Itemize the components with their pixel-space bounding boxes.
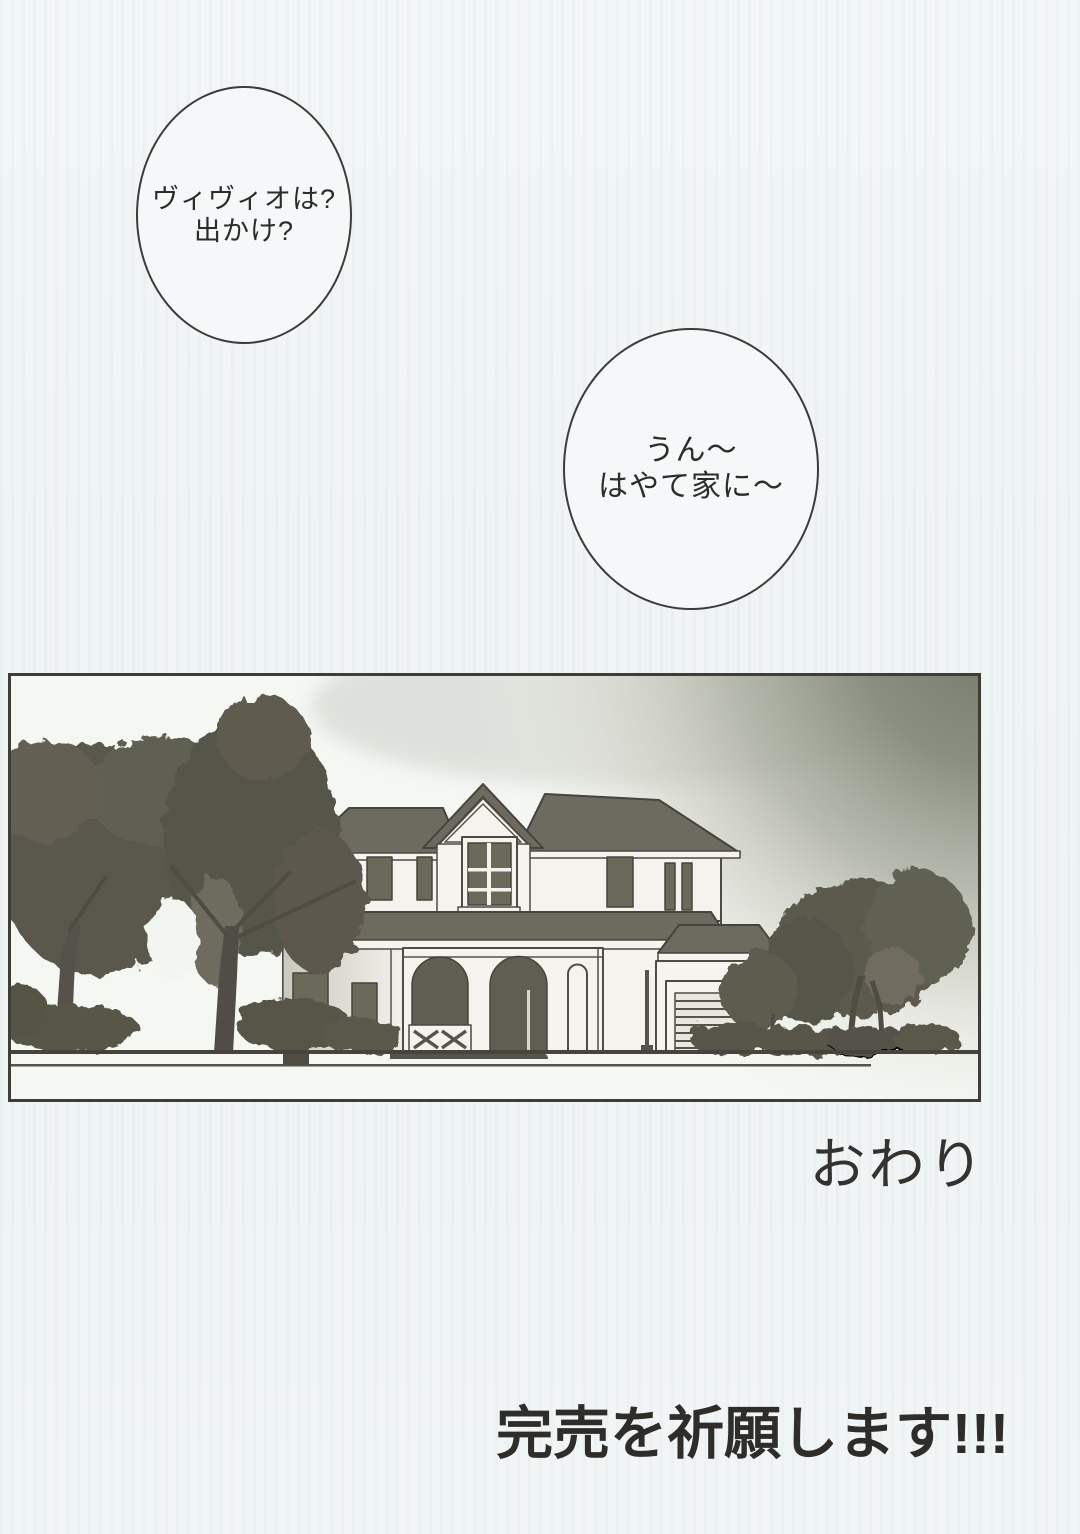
gable-window [458, 837, 520, 914]
upper-window [417, 857, 432, 900]
sellout-wish-caption: 完売を祈願します!!! [496, 1388, 1009, 1470]
narrow-arch [568, 965, 587, 1054]
bubble-2-line-1: うん〜 [598, 433, 784, 469]
upper-window [665, 863, 675, 910]
house-illustration [11, 676, 978, 1099]
speech-bubble-2: うん〜 はやて家に〜 [563, 328, 819, 610]
porch [390, 948, 603, 1059]
garage-roof [658, 925, 780, 953]
the-end-caption: おわり [790, 1120, 1006, 1201]
speech-bubble-1: ヴィヴィオは? 出かけ? [136, 86, 352, 344]
ground-line-main [11, 1050, 978, 1054]
upper-window [682, 863, 692, 910]
downspout [645, 970, 649, 1053]
porch-railing [409, 1025, 471, 1052]
manga-page: ヴィヴィオは? 出かけ? うん〜 はやて家に〜 [0, 0, 1080, 1534]
upper-window [367, 857, 392, 900]
door-edge-highlight [527, 990, 530, 1050]
upper-window [607, 857, 633, 907]
speech-bubble-2-text: うん〜 はやて家に〜 [598, 433, 784, 505]
porch-arch [490, 957, 547, 1054]
ground-line-secondary [11, 1064, 871, 1067]
ground-box [283, 1054, 309, 1065]
bubble-1-line-1: ヴィヴィオは? [152, 183, 336, 215]
bubble-2-line-2: はやて家に〜 [598, 469, 784, 505]
speech-bubble-1-text: ヴィヴィオは? 出かけ? [152, 183, 336, 248]
illustration-panel [8, 673, 981, 1102]
bubble-1-line-2: 出かけ? [152, 215, 336, 247]
